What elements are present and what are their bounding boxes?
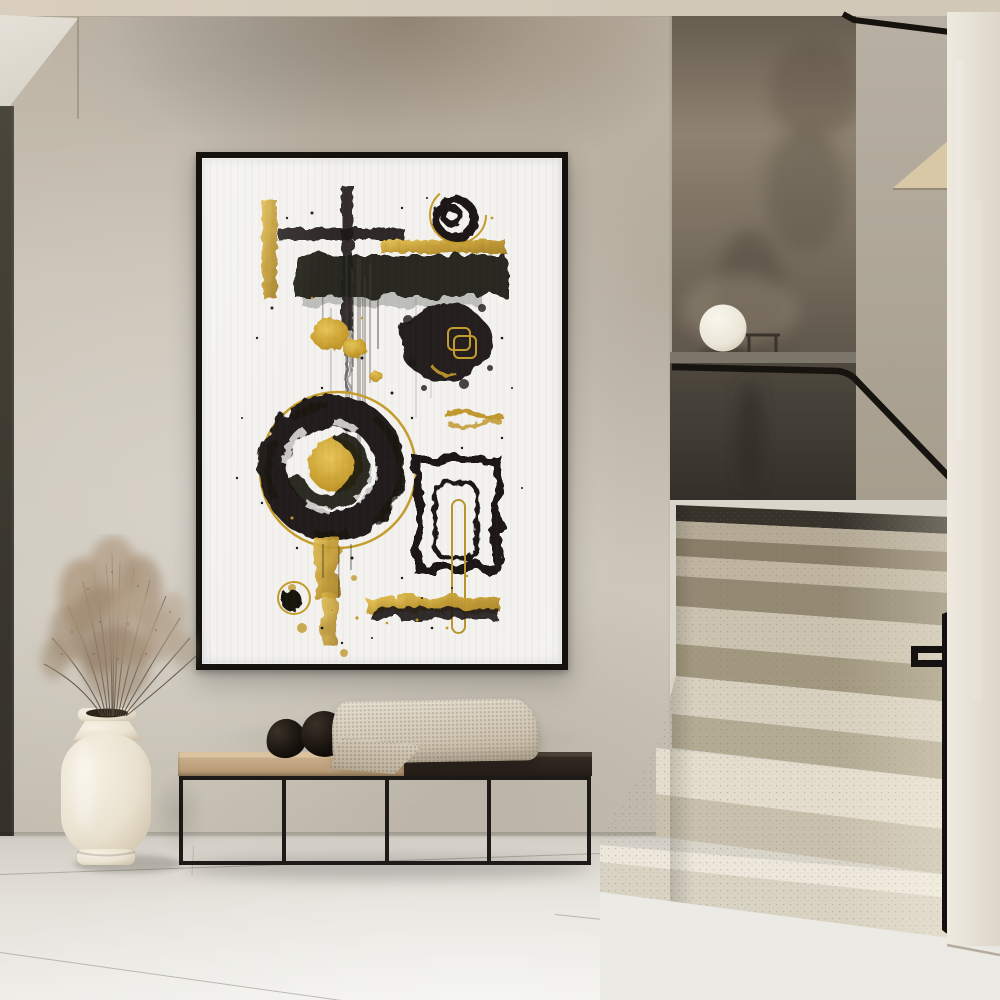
door-reveal-strip (0, 106, 14, 842)
bench-leg (487, 776, 491, 865)
hallway-scene (0, 0, 1000, 1000)
gold-horizontal-band (380, 240, 506, 253)
framed-art-poster (196, 152, 568, 670)
stair-steps (600, 505, 952, 940)
gold-vertical-stroke (262, 200, 277, 298)
bench-leg (282, 776, 286, 865)
black-grunge-band (295, 255, 506, 306)
bench-leg (587, 776, 591, 865)
black-splash-blob (400, 302, 493, 391)
landing-ledge (670, 352, 856, 363)
lamp-sphere (700, 305, 747, 352)
wall-corner-edge (77, 17, 79, 119)
stairwell-back-wall (672, 16, 860, 370)
stairwell-ceiling (600, 0, 1000, 15)
vase-body (61, 708, 151, 865)
bottom-bars (365, 597, 500, 619)
staircase-area (600, 0, 1000, 1000)
abstract-artwork-canvas (202, 158, 562, 664)
gold-scribble (445, 411, 503, 427)
knitted-throw-blanket (330, 696, 542, 776)
bench-frame-rail (179, 861, 591, 865)
large-swirl-circle (260, 392, 416, 548)
floor-vase-with-dried-stems (28, 534, 208, 878)
bench-leg (385, 776, 389, 865)
poster-artwork (202, 158, 562, 664)
right-foreground-wall (947, 12, 1000, 955)
black-spiral (430, 187, 486, 243)
